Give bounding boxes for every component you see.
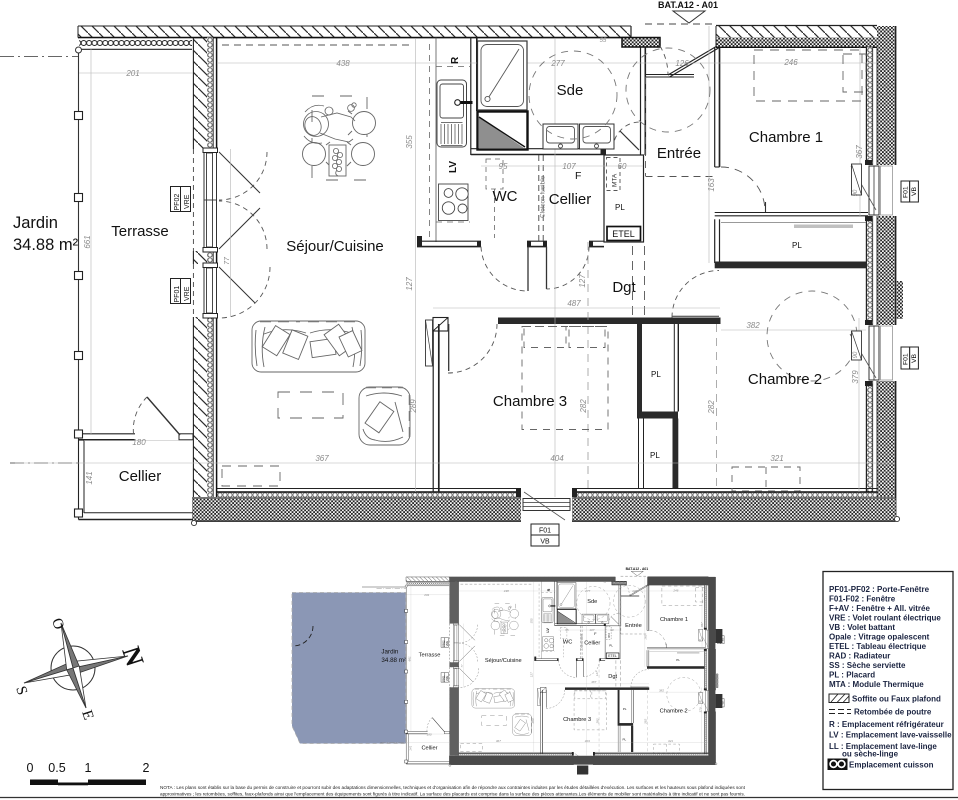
svg-text:367: 367 [855, 145, 864, 159]
svg-text:VB: VB [540, 539, 550, 546]
svg-text:201: 201 [125, 69, 139, 78]
svg-text:Séjour/Cuisine: Séjour/Cuisine [286, 238, 384, 255]
svg-text:Chambre 3: Chambre 3 [493, 393, 567, 410]
svg-text:289: 289 [409, 399, 418, 414]
svg-text:WC: WC [493, 188, 518, 205]
svg-text:282: 282 [707, 400, 716, 415]
svg-text:90: 90 [853, 351, 859, 358]
svg-text:N: N [116, 643, 149, 670]
svg-text:PF01: PF01 [174, 286, 181, 303]
svg-text:661: 661 [83, 235, 92, 248]
svg-text:Opale : Vitrage opalescent: Opale : Vitrage opalescent [829, 633, 930, 642]
svg-text:Cloison fusible: Cloison fusible [540, 175, 547, 218]
svg-text:VRE : Volet roulant électrique: VRE : Volet roulant électrique [829, 614, 941, 623]
svg-text:Chambre 2: Chambre 2 [748, 371, 822, 388]
svg-text:F01-F02 : Fenêtre: F01-F02 : Fenêtre [829, 595, 896, 604]
svg-text:VB: VB [911, 353, 918, 363]
svg-text:107: 107 [562, 162, 576, 171]
svg-text:F: F [575, 170, 581, 182]
svg-text:MTA : Module Thermique: MTA : Module Thermique [829, 680, 924, 689]
svg-text:382: 382 [746, 321, 760, 330]
svg-text:F01: F01 [539, 528, 551, 535]
svg-text:Soffite ou Faux plafond: Soffite ou Faux plafond [852, 695, 941, 704]
svg-text:Terrasse: Terrasse [111, 223, 169, 240]
svg-text:246: 246 [783, 58, 798, 67]
svg-text:SS : Sèche serviette: SS : Sèche serviette [829, 661, 906, 670]
svg-text:RAD : Radiateur: RAD : Radiateur [829, 652, 890, 661]
svg-text:VB : Volet battant: VB : Volet battant [829, 623, 895, 632]
svg-text:PL: PL [615, 203, 625, 212]
svg-text:Retombée de poutre: Retombée de poutre [854, 708, 932, 717]
svg-text:126: 126 [675, 59, 689, 68]
svg-text:Chambre 1: Chambre 1 [749, 129, 823, 146]
svg-text:180: 180 [132, 438, 146, 447]
svg-text:ETEL : Tableau électrique: ETEL : Tableau électrique [829, 642, 927, 651]
svg-text:F+AV : Fenêtre + All. vitrée: F+AV : Fenêtre + All. vitrée [829, 604, 930, 613]
svg-text:MTA: MTA [612, 173, 619, 187]
svg-text:355: 355 [405, 135, 414, 149]
svg-text:163: 163 [707, 178, 716, 192]
svg-text:S: S [12, 684, 30, 697]
svg-text:95: 95 [499, 162, 508, 171]
svg-text:60: 60 [618, 162, 627, 171]
svg-text:321: 321 [770, 454, 783, 463]
svg-text:BAT.A12 - A01: BAT.A12 - A01 [658, 0, 718, 10]
svg-text:PL: PL [792, 241, 802, 250]
svg-text:Cellier: Cellier [549, 191, 592, 208]
svg-text:487: 487 [567, 299, 581, 308]
svg-text:VRE: VRE [184, 286, 191, 301]
svg-text:Cellier: Cellier [119, 468, 162, 485]
svg-text:404: 404 [550, 454, 564, 463]
svg-text:0.5: 0.5 [48, 761, 65, 775]
svg-text:Entrée: Entrée [657, 145, 701, 162]
svg-text:PF01-PF02 : Porte-Fenêtre: PF01-PF02 : Porte-Fenêtre [829, 585, 930, 594]
svg-text:438: 438 [336, 59, 350, 68]
svg-text:34.88 m²: 34.88 m² [13, 236, 79, 254]
svg-text:LV: LV [448, 161, 459, 173]
svg-text:Sde: Sde [557, 82, 584, 99]
svg-text:379: 379 [851, 370, 860, 384]
svg-text:Jardin: Jardin [13, 214, 58, 232]
svg-text:77: 77 [224, 256, 231, 265]
svg-text:367: 367 [315, 454, 329, 463]
svg-text:VB: VB [911, 186, 918, 196]
svg-text:VRE: VRE [184, 194, 191, 209]
svg-text:282: 282 [579, 399, 588, 414]
svg-text:PL : Placard: PL : Placard [829, 671, 875, 680]
svg-text:PL: PL [651, 370, 661, 379]
svg-text:277: 277 [550, 59, 565, 68]
svg-text:55: 55 [600, 38, 607, 44]
svg-text:LV : Emplacement lave-vaissell: LV : Emplacement lave-vaisselle [829, 731, 952, 740]
svg-text:1: 1 [85, 761, 92, 775]
svg-text:NOTA : Les plans sont établis: NOTA : Les plans sont établis sur la bas… [160, 785, 746, 790]
svg-text:F01: F01 [903, 186, 910, 198]
svg-text:ou sèche-linge: ou sèche-linge [842, 750, 899, 759]
svg-text:ETEL: ETEL [612, 229, 635, 239]
svg-text:R : Emplacement réfrigérateur: R : Emplacement réfrigérateur [829, 720, 944, 729]
svg-text:127: 127 [405, 277, 414, 291]
svg-text:E: E [78, 708, 96, 722]
svg-text:PF02: PF02 [174, 194, 181, 211]
svg-text:0: 0 [27, 761, 34, 775]
svg-text:PL: PL [650, 451, 660, 460]
svg-text:127: 127 [578, 274, 587, 288]
svg-text:90: 90 [853, 189, 859, 196]
svg-text:R: R [450, 56, 461, 64]
svg-text:approximatives ; les retombées: approximatives ; les retombées, soffites… [160, 792, 745, 797]
svg-text:2: 2 [143, 761, 150, 775]
svg-text:Dgt: Dgt [612, 279, 636, 296]
svg-text:F01: F01 [903, 353, 910, 365]
svg-text:141: 141 [85, 471, 94, 484]
svg-text:Emplacement cuisson: Emplacement cuisson [849, 761, 934, 770]
